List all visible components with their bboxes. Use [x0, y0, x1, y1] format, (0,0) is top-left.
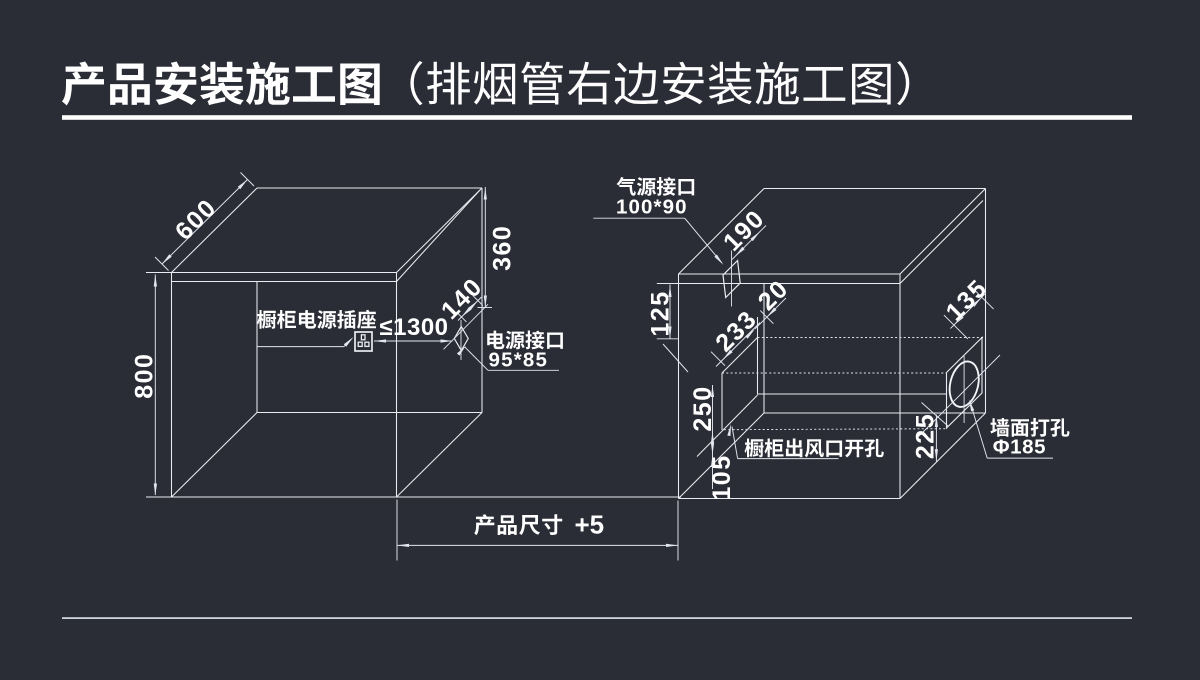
svg-text:100*90: 100*90 [616, 196, 688, 219]
svg-text:105: 105 [708, 454, 736, 500]
svg-text:+5: +5 [575, 510, 605, 540]
svg-text:225: 225 [911, 413, 939, 459]
svg-text:800: 800 [131, 353, 159, 399]
svg-text:95*85: 95*85 [489, 348, 549, 371]
svg-text:125: 125 [647, 290, 675, 336]
svg-text:360: 360 [488, 225, 516, 271]
svg-text:≤1300: ≤1300 [379, 314, 448, 341]
svg-text:250: 250 [689, 385, 717, 431]
svg-text:Φ185: Φ185 [993, 435, 1046, 458]
